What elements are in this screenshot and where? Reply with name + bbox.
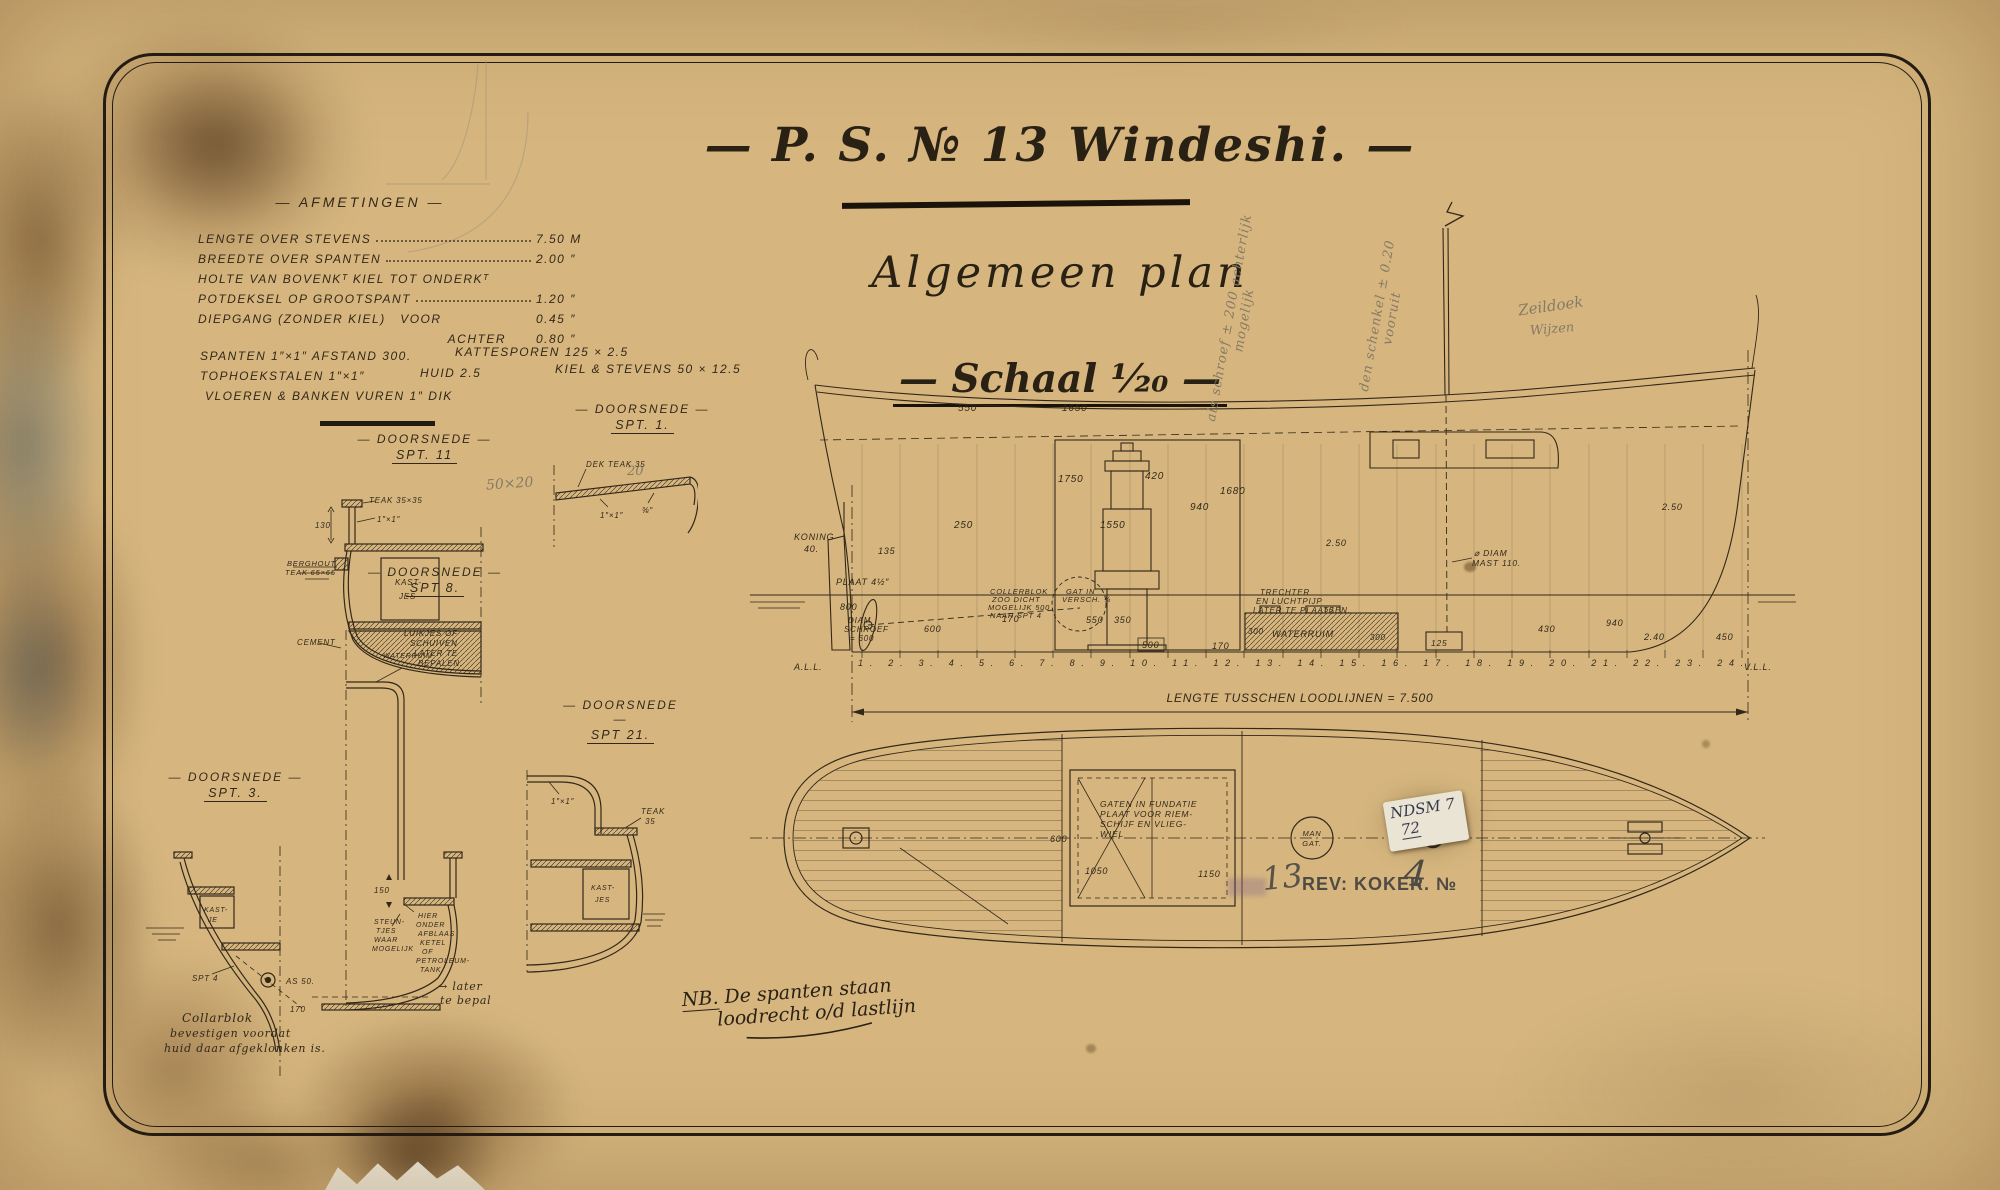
rev-koker-stamp: REV: KOKER. № bbox=[1302, 874, 1457, 895]
as50-label: AS 50. bbox=[285, 977, 315, 986]
loodlijn-label: A.L.L. bbox=[793, 662, 822, 672]
dim-label: 550 bbox=[1086, 615, 1103, 625]
section-subtitle: SPT. 11 bbox=[392, 448, 457, 464]
dim-label: 600 bbox=[924, 624, 941, 634]
dim-label: 940 bbox=[1606, 618, 1623, 628]
later-note: → later bbox=[438, 980, 483, 993]
dim-label: ACHTER bbox=[448, 332, 506, 346]
deck bbox=[188, 887, 234, 894]
section-title: — DOORSNEDE — bbox=[352, 432, 497, 446]
manhole-label: MAN bbox=[1302, 829, 1321, 838]
collarblok-note: huid daar afgeklonken is. bbox=[164, 1042, 326, 1055]
dim-label: 420 bbox=[1145, 471, 1164, 482]
plan-view-drawing: GATEN IN FUNDATIE PLAAT VOOR RIEM- SCHIJ… bbox=[600, 710, 1800, 970]
loodlijn-label: V.L.L. bbox=[1744, 662, 1772, 672]
bow-staff bbox=[1752, 295, 1759, 368]
dim-value: 7.50 M bbox=[536, 232, 598, 246]
post-cap bbox=[174, 852, 192, 858]
trechter-label: EN LUCHTPIJP bbox=[1256, 597, 1323, 606]
afmetingen-list: LENGTE OVER STEVENS 7.50 M BREEDTE OVER … bbox=[198, 226, 598, 346]
dim-label: BREEDTE OVER SPANTEN bbox=[198, 252, 381, 266]
dim-label: 1050 bbox=[1085, 866, 1108, 876]
paper-stain bbox=[900, 0, 1420, 60]
afblaas-label: PETROLEUM- bbox=[416, 958, 470, 965]
afmetingen-row: BREEDTE OVER SPANTEN 2.00 ″ bbox=[198, 246, 598, 266]
mast bbox=[1443, 228, 1449, 395]
dim-label: 2.50 bbox=[1325, 538, 1347, 548]
afmetingen-row: HOLTE VAN BOVENKᵀ KIEL TOT ONDERKᵀ bbox=[198, 266, 598, 286]
coaming-outer bbox=[346, 682, 404, 700]
spec-vloeren: VLOEREN & BANKEN VUREN 1″ DIK bbox=[205, 389, 453, 403]
spt4-label: SPT 4 bbox=[192, 974, 218, 983]
dim-label: 125 bbox=[1431, 638, 1448, 648]
heavy-rule bbox=[320, 421, 435, 426]
afblaas-label: KETEL bbox=[420, 940, 446, 947]
schroef-label: = 600 bbox=[850, 634, 874, 643]
section-title: — DOORSNEDE — bbox=[360, 565, 510, 579]
steuntjes-label: STEUN- bbox=[374, 919, 405, 926]
luikjes-label: LATER TE bbox=[414, 649, 458, 658]
kastje-label: JE bbox=[207, 917, 218, 924]
deck-beam bbox=[345, 544, 483, 551]
nb-label: NB. bbox=[681, 987, 719, 1012]
skylight-window bbox=[1486, 440, 1534, 458]
deck-planking bbox=[793, 732, 1752, 946]
mast-label: MAST 110. bbox=[1472, 558, 1521, 568]
sticker-text: 72 bbox=[1400, 818, 1422, 840]
bulwark bbox=[450, 858, 456, 898]
dim-label: 1550 bbox=[1100, 520, 1125, 531]
frame-numbers: 1. 2. 3. 4. 5. 6. 7. 8. 9. 10. 11. 12. 1… bbox=[858, 658, 1744, 668]
frame-ticks bbox=[862, 650, 1742, 658]
dim-value: 0.45 ″ bbox=[536, 312, 598, 326]
faint-stamp bbox=[1228, 878, 1266, 896]
afblaas-label: ONDER bbox=[416, 922, 445, 929]
gaten-label: SCHIJF EN VLIEG- bbox=[1100, 819, 1187, 829]
dim-label: 300 bbox=[1370, 633, 1386, 642]
luikjes-label: BEPALEN. bbox=[418, 659, 463, 668]
sheer-line bbox=[815, 368, 1755, 402]
dim-label: 1750 bbox=[1058, 474, 1083, 485]
berghout-label: BERGHOUT bbox=[287, 559, 337, 568]
lengte-label: LENGTE TUSSCHEN LOODLIJNEN = 7.500 bbox=[1167, 691, 1434, 705]
kastje-label: KAST- bbox=[204, 907, 228, 914]
teak-cap bbox=[342, 500, 362, 507]
deck bbox=[404, 898, 454, 905]
manhole-label: GAT. bbox=[1302, 839, 1321, 848]
handwritten-number: 13 bbox=[1260, 856, 1304, 898]
afblaas-label: AFBLAAS bbox=[417, 931, 455, 938]
dotted-leader bbox=[376, 240, 531, 242]
floor bbox=[222, 943, 280, 950]
dim-label: 250 bbox=[953, 520, 973, 531]
section-spt3-header: — DOORSNEDE — SPT. 3. bbox=[158, 770, 313, 802]
afmetingen-row: LENGTE OVER STEVENS 7.50 M bbox=[198, 226, 598, 246]
gat-label: VERSCH. ¾ bbox=[1062, 595, 1111, 604]
angle-label: 1″×1″ bbox=[377, 515, 401, 524]
coaming-sides bbox=[398, 700, 404, 880]
stanchion bbox=[349, 507, 355, 544]
dim-label: 600 bbox=[1050, 834, 1067, 844]
koning-label: 40. bbox=[804, 544, 819, 554]
trechter-label: TRECHTER bbox=[1260, 588, 1310, 597]
section-title: — DOORSNEDE — bbox=[158, 770, 313, 784]
steuntjes-label: TJES bbox=[376, 928, 396, 935]
spec-huid: HUID 2.5 bbox=[420, 366, 481, 380]
dim-label: 800 bbox=[840, 602, 857, 612]
section-subtitle: SPT. 3. bbox=[204, 786, 267, 802]
deck-line-dashed bbox=[820, 426, 1740, 440]
dim-value: 2.00 ″ bbox=[536, 252, 598, 266]
dim-label: 1680 bbox=[1220, 486, 1245, 497]
dim-value: 0.80 ″ bbox=[536, 332, 598, 346]
dim-value: 1.20 ″ bbox=[536, 292, 598, 306]
dim-label: 500 bbox=[1142, 640, 1159, 650]
teak-label: TEAK 35×35 bbox=[369, 496, 423, 505]
dim-label: 1650 bbox=[1062, 403, 1087, 414]
dim-label: 170 bbox=[290, 1005, 306, 1014]
dotted-leader bbox=[386, 260, 531, 262]
dim-label: 350 bbox=[1114, 615, 1131, 625]
dim-label: 1150 bbox=[1198, 869, 1221, 879]
angle-label: 1″×1″ bbox=[551, 797, 575, 806]
rail-cap bbox=[444, 852, 462, 858]
dim-label: POTDEKSEL OP GROOTSPANT bbox=[198, 292, 411, 306]
berghout-label: TEAK 65×65 bbox=[285, 568, 336, 577]
stern-davit bbox=[805, 350, 818, 380]
side-elevation-drawing: 550 1650 1750 1550 1680 250 420 940 KONI… bbox=[600, 200, 1800, 760]
dim-label: 2.40 bbox=[1643, 632, 1665, 642]
spec-tophoekstalen: TOPHOEKSTALEN 1″×1″ bbox=[200, 369, 365, 383]
mast-label: ⌀ DIAM bbox=[1474, 548, 1508, 558]
coaming-inner bbox=[527, 782, 595, 834]
collarblok-note: bevestigen voordat bbox=[170, 1027, 291, 1040]
dim-label: HOLTE VAN BOVENKᵀ KIEL TOT ONDERKᵀ bbox=[198, 272, 489, 286]
dim-label: 450 bbox=[1716, 632, 1733, 642]
koker-number: 4 bbox=[1403, 853, 1429, 895]
trechter-label: LATER TE PLAATSEN. bbox=[1253, 606, 1351, 615]
plaat-label: PLAAT 4½″ bbox=[836, 577, 889, 587]
gaten-label: WIEL bbox=[1100, 829, 1124, 839]
afblaas-label: HIER bbox=[418, 913, 438, 920]
dim-label: 130 bbox=[315, 521, 331, 530]
dim-label: 170 bbox=[1212, 641, 1229, 651]
mast-pennant bbox=[1445, 202, 1463, 226]
dim-label: 300 bbox=[1248, 627, 1264, 636]
dim-label: 940 bbox=[1190, 502, 1209, 513]
drawing-sheet: — P. S. № 13 Windeshi. — Algemeen plan —… bbox=[0, 0, 2000, 1190]
steuntjes-label: WAAR bbox=[374, 937, 398, 944]
dotted-leader bbox=[416, 300, 531, 302]
dim-label: 550 bbox=[958, 403, 977, 414]
dim-label: 150 bbox=[374, 886, 390, 895]
afmetingen-row: DIEPGANG (ZONDER KIEL) VOOR 0.45 ″ bbox=[198, 306, 598, 326]
gaten-label: PLAAT VOOR RIEM- bbox=[1100, 809, 1193, 819]
section-spt11-header: — DOORSNEDE — SPT. 11 bbox=[352, 432, 497, 464]
luikjes-label: LUIKJES OF bbox=[404, 629, 458, 638]
waterruim-label: WATERRUIM bbox=[1272, 629, 1334, 639]
dim-label: 430 bbox=[1538, 624, 1555, 634]
schroef-label: DIAM bbox=[848, 616, 871, 625]
dim-label: DIEPGANG (ZONDER KIEL) VOOR bbox=[198, 312, 442, 326]
gaten-label: GATEN IN FUNDATIE bbox=[1100, 799, 1197, 809]
pencil-note: 50×20 bbox=[485, 474, 533, 493]
schroef-label: SCHROEF bbox=[844, 625, 889, 634]
dim-label: LENGTE OVER STEVENS bbox=[198, 232, 371, 246]
section-spt8-header: — DOORSNEDE — SPT 8. bbox=[360, 565, 510, 597]
luikjes-label: SCHUIVEN bbox=[410, 639, 458, 648]
section-subtitle: SPT 8. bbox=[406, 581, 464, 597]
afmetingen-row: POTDEKSEL OP GROOTSPANT 1.20 ″ bbox=[198, 286, 598, 306]
dim-label: 2.50 bbox=[1661, 502, 1683, 512]
later-note: te bepalen. bbox=[440, 994, 492, 1007]
afmetingen-heading: — AFMETINGEN — bbox=[250, 194, 470, 210]
page-title: — P. S. № 13 Windeshi. — bbox=[640, 118, 1480, 173]
dim-label: 50 bbox=[1324, 605, 1334, 614]
dim-label: 135 bbox=[878, 546, 896, 556]
skylight bbox=[1370, 432, 1558, 468]
afmetingen-row: ACHTER 0.80 ″ bbox=[198, 326, 598, 346]
collarblok-note: Collarblok bbox=[182, 1011, 253, 1025]
waterline-marks bbox=[146, 928, 184, 940]
coaming-inner bbox=[346, 688, 398, 702]
spec-spanten: SPANTEN 1″×1″ AFSTAND 300. bbox=[200, 349, 412, 363]
dim-label: 170 bbox=[1002, 614, 1019, 624]
steuntjes-label: MOGELIJK bbox=[372, 946, 414, 953]
afblaas-label: OF bbox=[422, 949, 433, 956]
koning-label: KONING bbox=[794, 532, 834, 542]
section-spt3-drawing: KAST- JE SPT 4 AS 50. 170 Collarblok bev… bbox=[140, 838, 345, 1083]
afblaas-label: TANK bbox=[420, 967, 441, 974]
